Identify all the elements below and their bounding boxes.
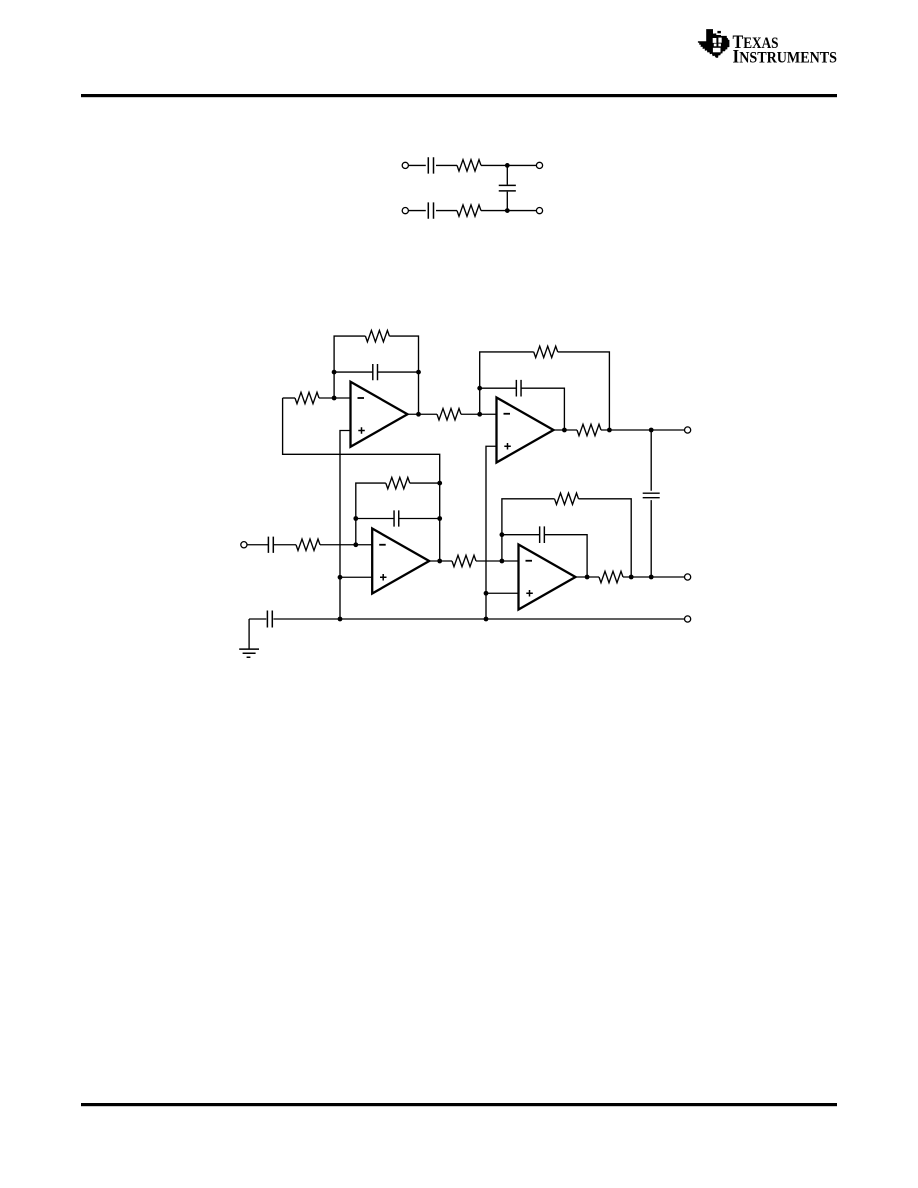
svg-text:INSTRUMENTS: INSTRUMENTS [733,47,838,68]
